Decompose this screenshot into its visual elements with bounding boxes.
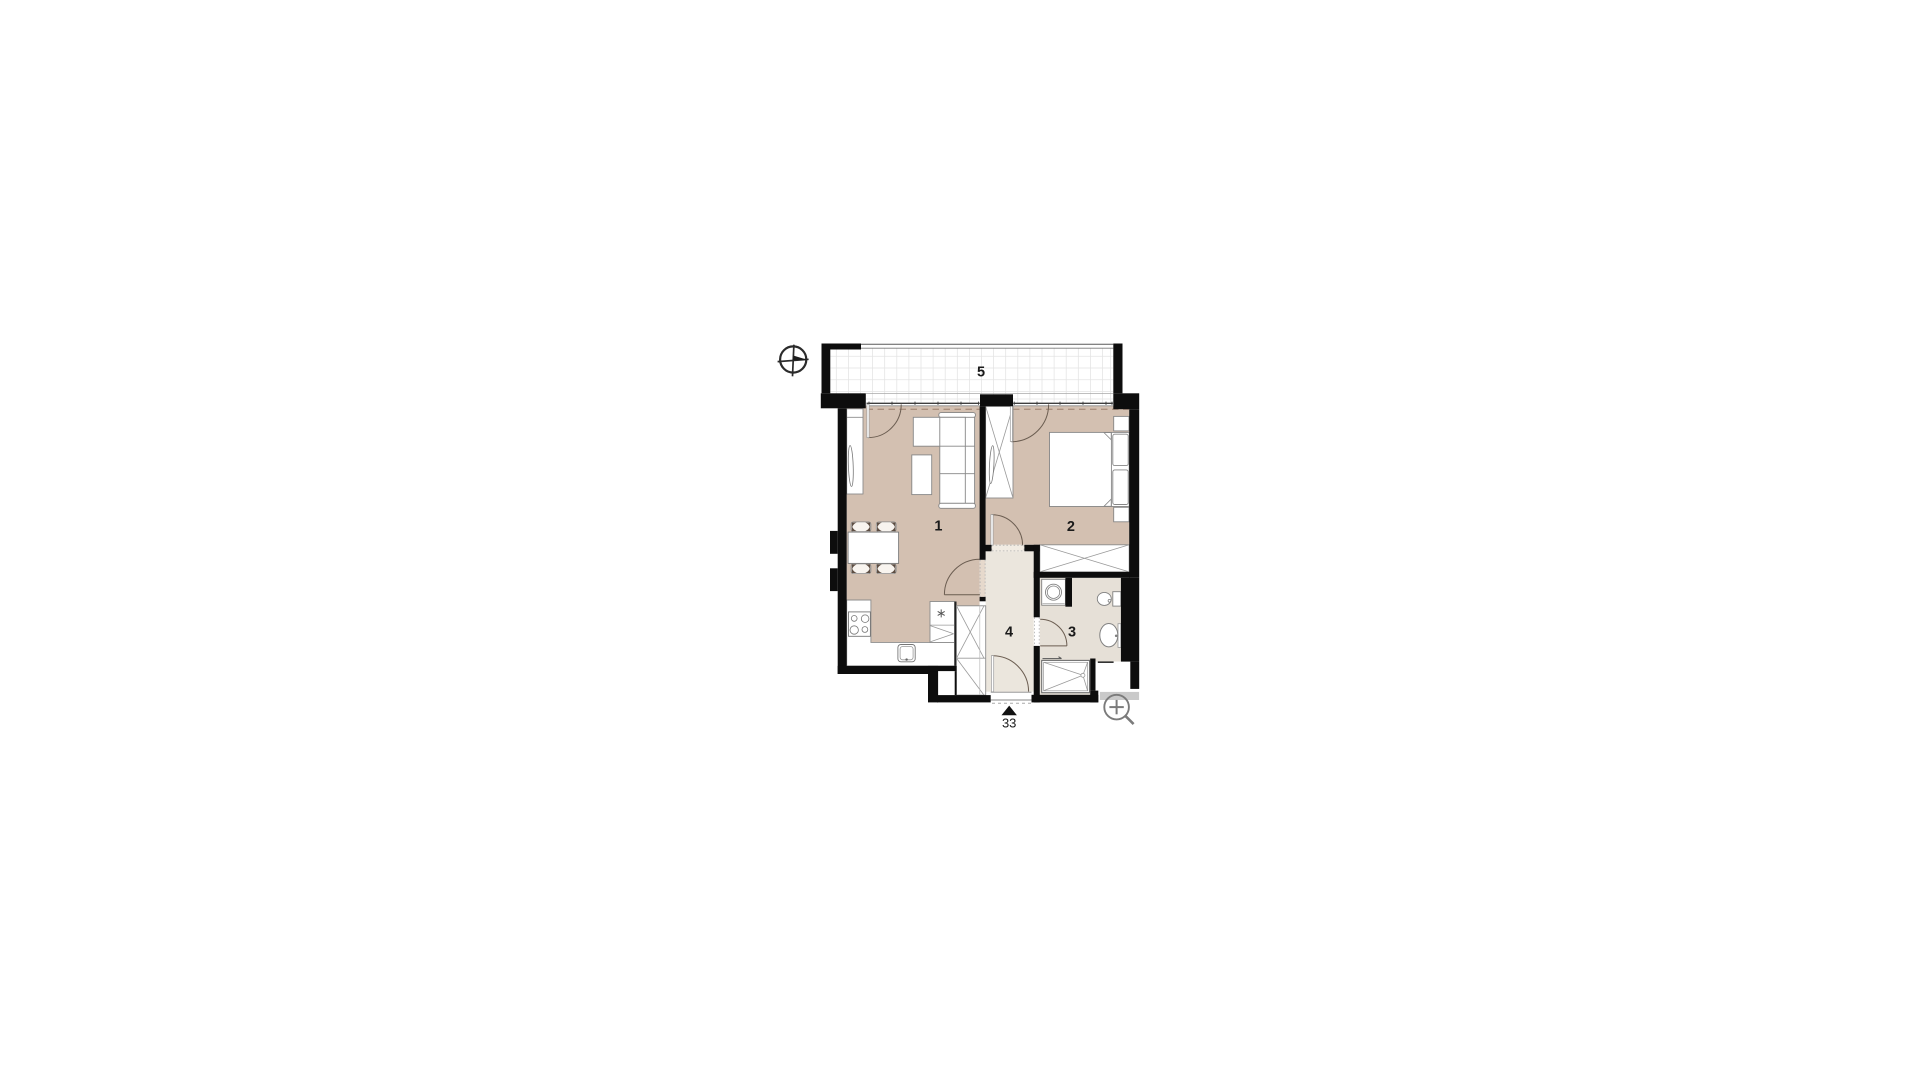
svg-text:4: 4 (1005, 624, 1013, 640)
svg-text:3: 3 (1068, 624, 1076, 640)
svg-text:5: 5 (977, 364, 985, 380)
svg-text:2: 2 (1067, 519, 1075, 535)
svg-text:1: 1 (934, 519, 942, 535)
svg-text:33: 33 (1002, 715, 1016, 730)
